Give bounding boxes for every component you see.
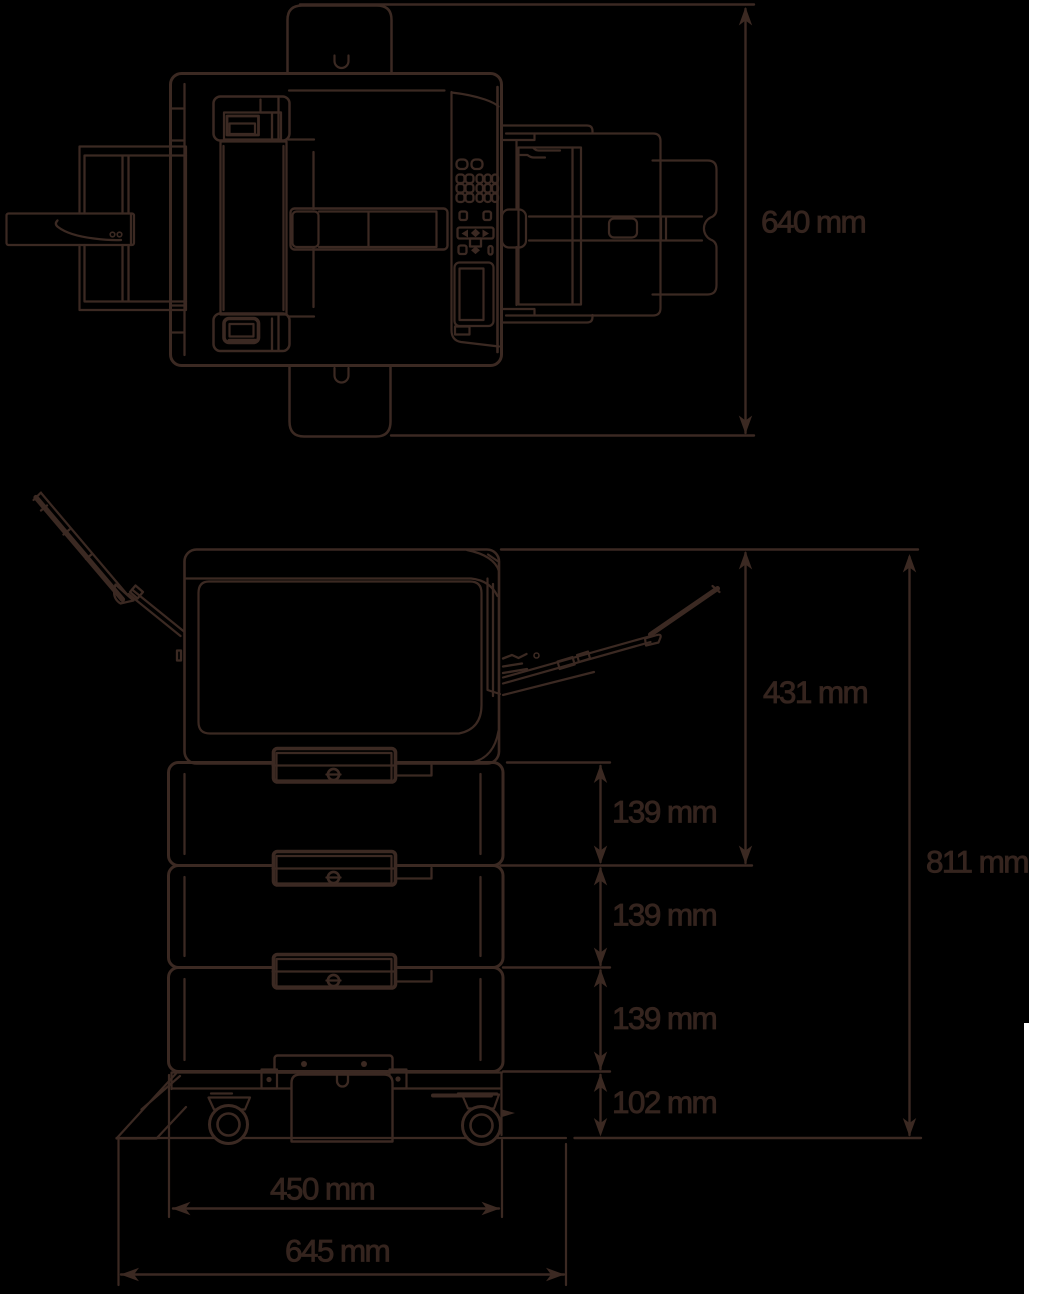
svg-text:431 mm: 431 mm bbox=[763, 674, 868, 710]
svg-text:645 mm: 645 mm bbox=[285, 1233, 390, 1269]
svg-text:450 mm: 450 mm bbox=[270, 1171, 375, 1207]
svg-text:640 mm: 640 mm bbox=[761, 204, 866, 240]
svg-text:139 mm: 139 mm bbox=[612, 897, 717, 933]
svg-text:139 mm: 139 mm bbox=[612, 794, 717, 830]
svg-text:811 mm: 811 mm bbox=[926, 844, 1028, 880]
svg-text:102 mm: 102 mm bbox=[612, 1084, 717, 1120]
svg-text:139 mm: 139 mm bbox=[612, 1000, 717, 1036]
